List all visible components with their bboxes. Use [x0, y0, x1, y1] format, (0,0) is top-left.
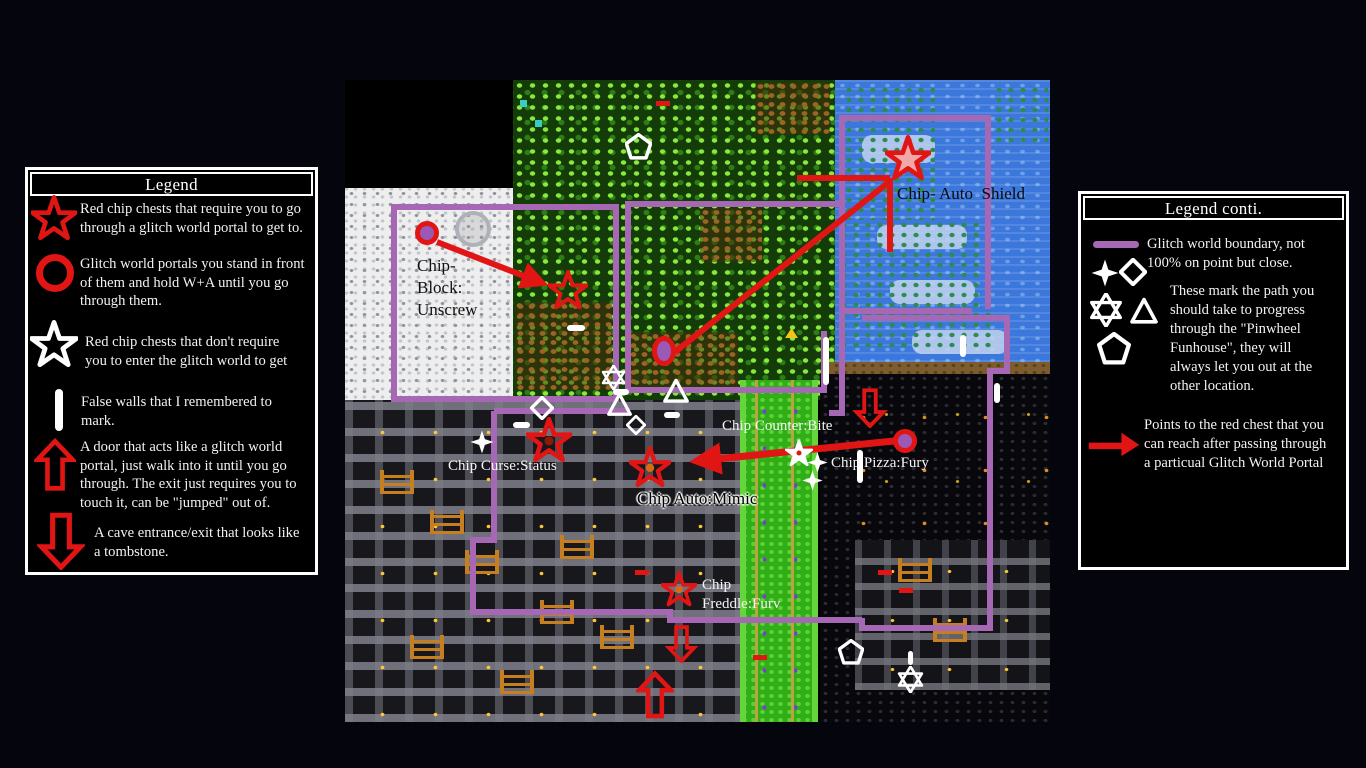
ladder-art	[600, 625, 634, 649]
legend-item-white-star-text: Red chip chests that don't require you t…	[85, 333, 320, 370]
white-star-icon	[30, 320, 78, 368]
pentagon-icon	[1097, 332, 1131, 365]
water-bush-art	[843, 85, 935, 220]
red-dash-art	[878, 570, 892, 575]
game-map: Chip- Auto ShieldChip- Block: UnscrewChi…	[345, 80, 1050, 722]
ladder-art	[933, 618, 967, 642]
four-point-star-icon	[1091, 259, 1119, 287]
snow-dome-art	[455, 211, 491, 247]
legend-item-red-star-text: Red chip chests that require you to go t…	[80, 200, 320, 237]
legend-item-door-text: A door that acts like a glitch world por…	[80, 438, 322, 513]
grass-strip-region	[740, 380, 818, 722]
red-down-arrow-icon	[37, 512, 85, 570]
teal-pixel-art	[535, 120, 542, 127]
red-dash-art	[635, 570, 649, 575]
legend-item-false-wall-text: False walls that I remembered to mark.	[81, 393, 319, 430]
ladder-art	[465, 550, 499, 574]
void-region	[345, 80, 513, 188]
legend-left-title: Legend	[30, 172, 313, 196]
legend-item-path-shapes-text: These mark the path you should take to p…	[1170, 282, 1350, 396]
annotated-game-map: Legend Red chip chests that require you …	[0, 0, 1366, 768]
red-circle-icon	[36, 254, 74, 292]
orchard-art	[700, 208, 762, 262]
orchard-art	[628, 332, 738, 392]
shore-region	[823, 362, 1050, 374]
orchard-art	[515, 302, 612, 390]
hexagram-icon	[1089, 293, 1123, 327]
legend-item-arrow-text: Points to the red chest that you can rea…	[1144, 416, 1346, 473]
triangle-icon	[1128, 296, 1160, 326]
legend-item-portal-text: Glitch world portals you stand in front …	[80, 255, 320, 311]
red-star-icon	[31, 195, 77, 241]
red-dash-art	[656, 101, 670, 106]
legend-item-boundary-text: Glitch world boundary, not 100% on point…	[1147, 235, 1347, 273]
teal-pixel-art	[520, 100, 527, 107]
legend-item-cave-text: A cave entrance/exit that looks like a t…	[94, 524, 320, 561]
dungeon-maze-region	[345, 400, 740, 722]
legend-right-title: Legend conti.	[1083, 196, 1344, 220]
white-bar-icon	[55, 389, 63, 431]
ladder-art	[898, 558, 932, 582]
red-up-arrow-icon	[34, 436, 76, 494]
purple-line-icon	[1093, 241, 1139, 248]
red-dash-art	[899, 588, 913, 593]
water-bush-art	[993, 85, 1048, 145]
ladder-art	[410, 635, 444, 659]
ladder-art	[380, 470, 414, 494]
water-bush-art	[838, 220, 995, 350]
legend-panel-left: Legend Red chip chests that require you …	[25, 167, 318, 575]
legend-panel-right: Legend conti. Glitch world boundary, not…	[1078, 191, 1349, 570]
orchard-art	[755, 82, 830, 134]
diamond-icon	[1119, 258, 1147, 286]
ladder-art	[540, 600, 574, 624]
red-right-arrow-icon	[1086, 425, 1142, 463]
red-dash-art	[753, 655, 767, 660]
dungeon-maze-region-2	[855, 540, 1050, 690]
ladder-art	[430, 510, 464, 534]
ladder-art	[560, 535, 594, 559]
ladder-art	[500, 670, 534, 694]
